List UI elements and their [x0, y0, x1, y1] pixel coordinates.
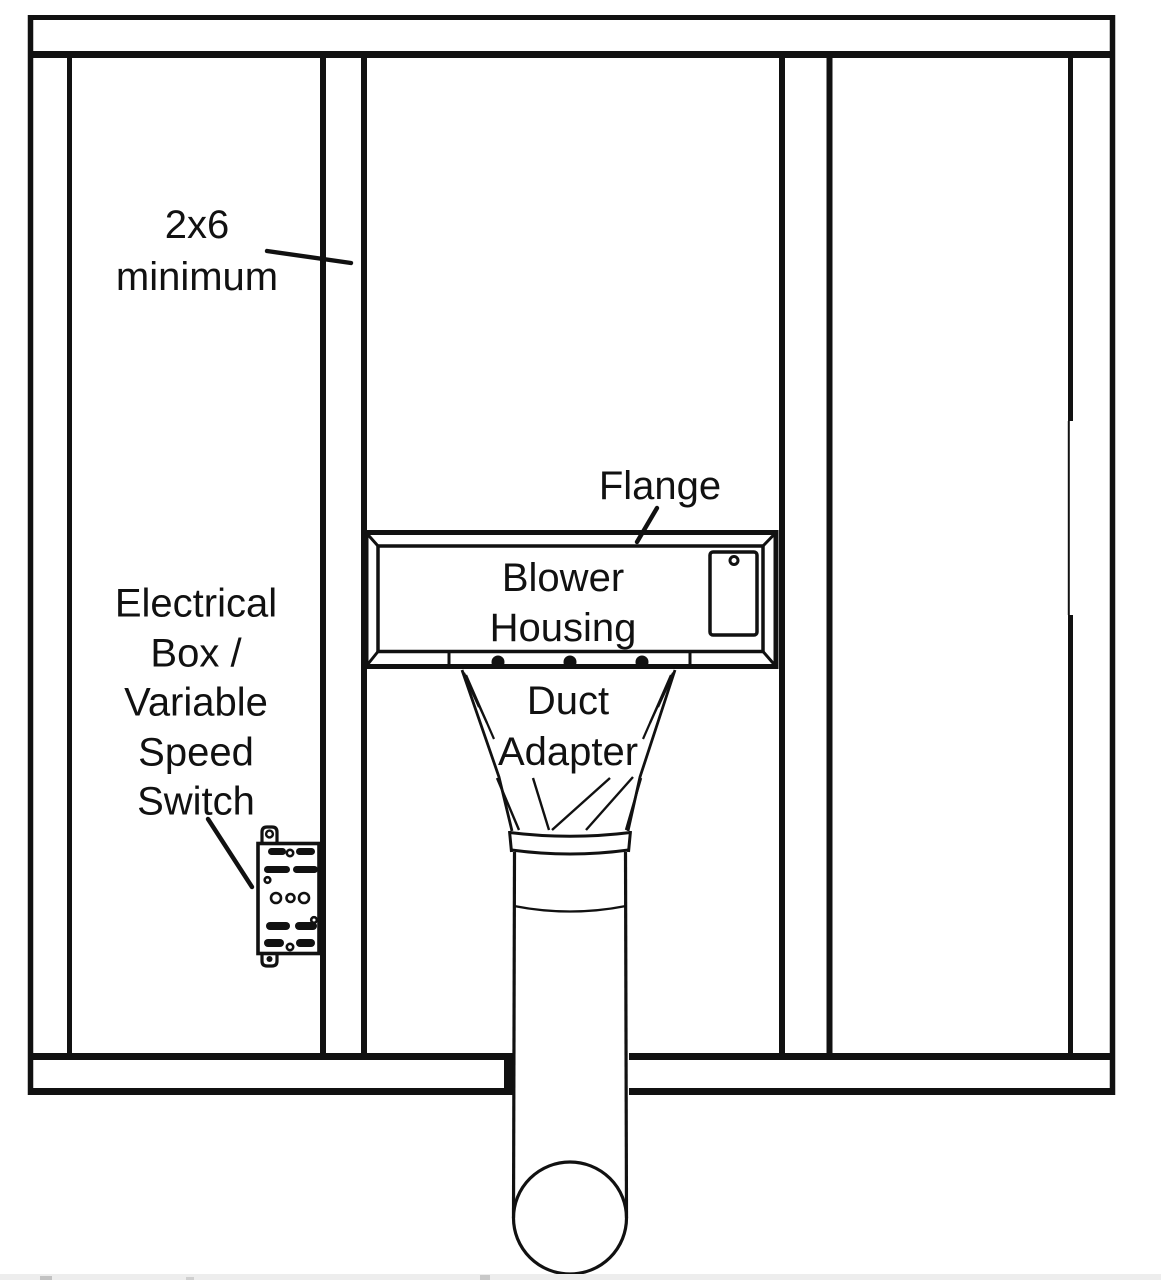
blower-housing-line-1: Blower	[490, 553, 637, 603]
electrical-box-drawing	[258, 827, 319, 966]
label-stud-note: 2x6 minimum	[116, 199, 278, 303]
duct-collar	[510, 831, 631, 854]
bottom-plate	[28, 1053, 1115, 1095]
bottom-artifact-strip	[0, 1274, 1161, 1280]
installation-diagram: 2x6 minimum Flange Blower Housing Duct A…	[0, 0, 1161, 1280]
right-wall-stud	[1069, 15, 1113, 1095]
electrical-switch-line-5: Switch	[115, 777, 277, 827]
stud-note-leader	[267, 251, 351, 263]
duct-adapter-line-2: Adapter	[498, 727, 638, 778]
label-duct-adapter: Duct Adapter	[498, 676, 638, 778]
label-blower-housing: Blower Housing	[490, 553, 637, 653]
screw-icon	[492, 656, 505, 669]
label-electrical-switch: Electrical Box / Variable Speed Switch	[115, 579, 277, 827]
duct-adapter-line-1: Duct	[498, 676, 638, 727]
flange-text: Flange	[599, 461, 721, 511]
top-plate	[28, 18, 1115, 55]
blower-housing-line-2: Housing	[490, 603, 637, 653]
duct-seam	[514, 906, 626, 912]
round-duct-drawing	[514, 852, 627, 1274]
screw-icon	[636, 656, 649, 669]
label-flange: Flange	[599, 461, 721, 511]
electrical-switch-line-4: Speed	[115, 728, 277, 778]
adapter-fan-lines	[497, 777, 641, 830]
electrical-switch-line-1: Electrical	[115, 579, 277, 629]
stud-note-line-2: minimum	[116, 251, 278, 303]
left-wall-stud	[31, 15, 70, 1095]
duct-open-end	[514, 1162, 627, 1274]
switch-leader	[208, 819, 252, 887]
junction-box	[710, 552, 757, 635]
electrical-switch-line-2: Box /	[115, 629, 277, 679]
right-center-stud	[782, 58, 830, 1053]
left-center-stud	[323, 58, 364, 1053]
stud-note-line-1: 2x6	[116, 199, 278, 251]
electrical-switch-line-3: Variable	[115, 678, 277, 728]
screw-icon	[564, 656, 577, 669]
